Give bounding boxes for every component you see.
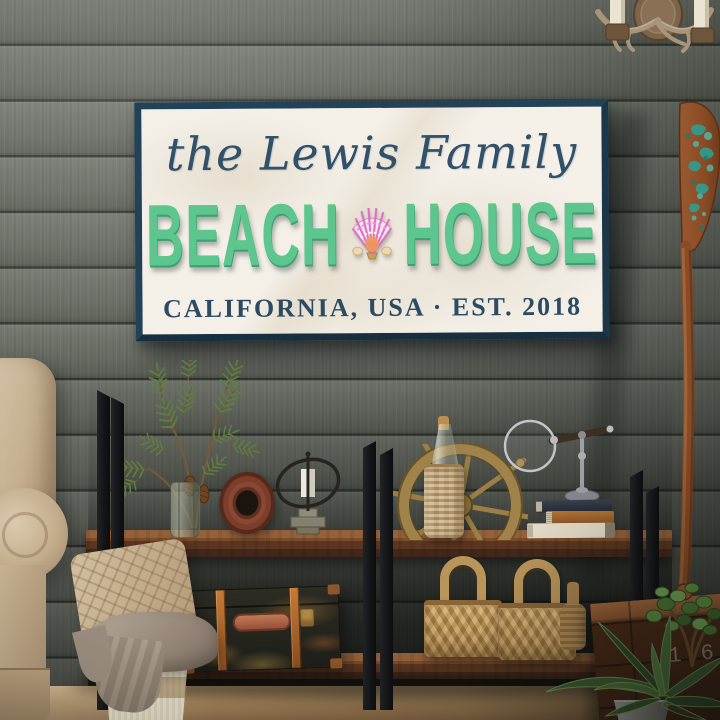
trunk-handle xyxy=(232,612,291,632)
trunk-corner-cap xyxy=(327,584,339,594)
console-post-middle xyxy=(363,441,376,710)
trunk-lid-seam xyxy=(182,602,338,609)
console-post-middle-2 xyxy=(380,448,393,710)
sign-family-line: the Lewis Family xyxy=(141,125,601,182)
glass-vase xyxy=(170,482,200,538)
sign-main-line: BEACH xyxy=(142,191,603,278)
sign-marble-face: the Lewis Family BEACH xyxy=(141,107,602,335)
sign-word-house: HOUSE xyxy=(403,189,598,278)
trunk-strap xyxy=(216,590,228,670)
antler-sconce-graphic xyxy=(594,0,720,58)
trunk-corner-cap xyxy=(330,658,342,668)
agave-plant xyxy=(542,604,720,720)
armchair-skirt xyxy=(0,668,50,720)
basket-body xyxy=(424,600,502,657)
wicker-basket-left xyxy=(424,556,502,657)
antler-candle-sconce xyxy=(594,0,720,58)
armillary-candle-holder xyxy=(272,449,344,541)
scallop-shell-icon xyxy=(349,208,395,260)
book-cream xyxy=(527,523,615,539)
sign-location-line: CALIFORNIA, USA · EST. 2018 xyxy=(142,292,602,325)
magnifying-glass-stand xyxy=(498,416,620,512)
sign-word-beach: BEACH xyxy=(146,191,341,280)
beach-house-sign: the Lewis Family BEACH xyxy=(134,100,609,342)
wicker-bottle-sleeve xyxy=(424,464,464,538)
wooden-paddle-oar xyxy=(636,96,720,608)
trunk-strap xyxy=(290,588,302,668)
trunk-lock xyxy=(300,609,314,626)
beach-house-room-photo: the Lewis Family BEACH xyxy=(0,0,720,720)
